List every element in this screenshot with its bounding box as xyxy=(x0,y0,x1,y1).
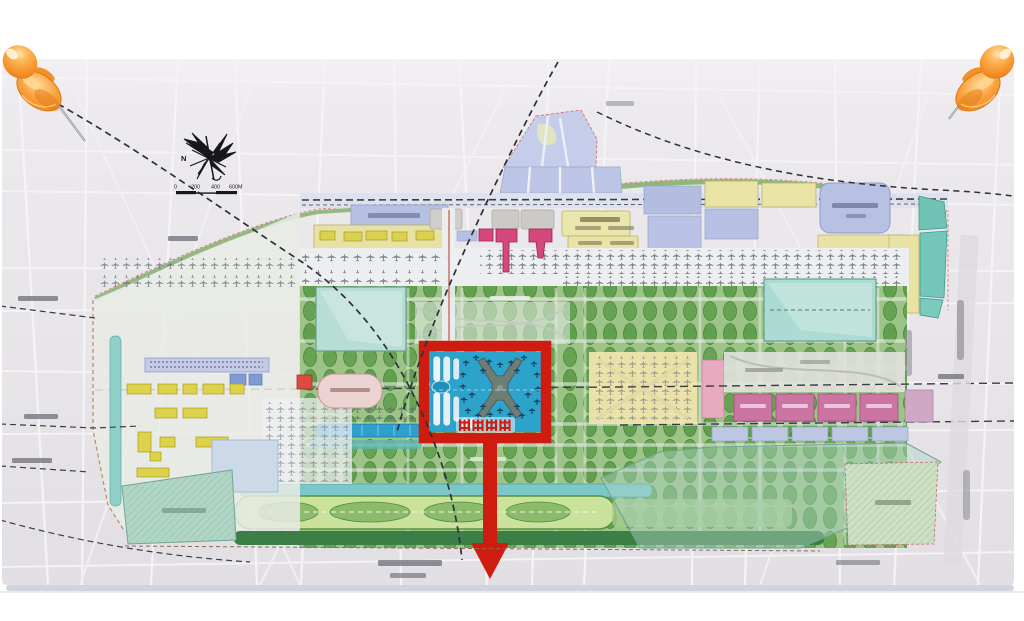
svg-text:200: 200 xyxy=(191,185,200,191)
svg-text:600M: 600M xyxy=(229,185,243,191)
svg-text:N: N xyxy=(181,154,186,163)
svg-text:400: 400 xyxy=(211,185,220,191)
svg-text:0: 0 xyxy=(174,185,177,191)
